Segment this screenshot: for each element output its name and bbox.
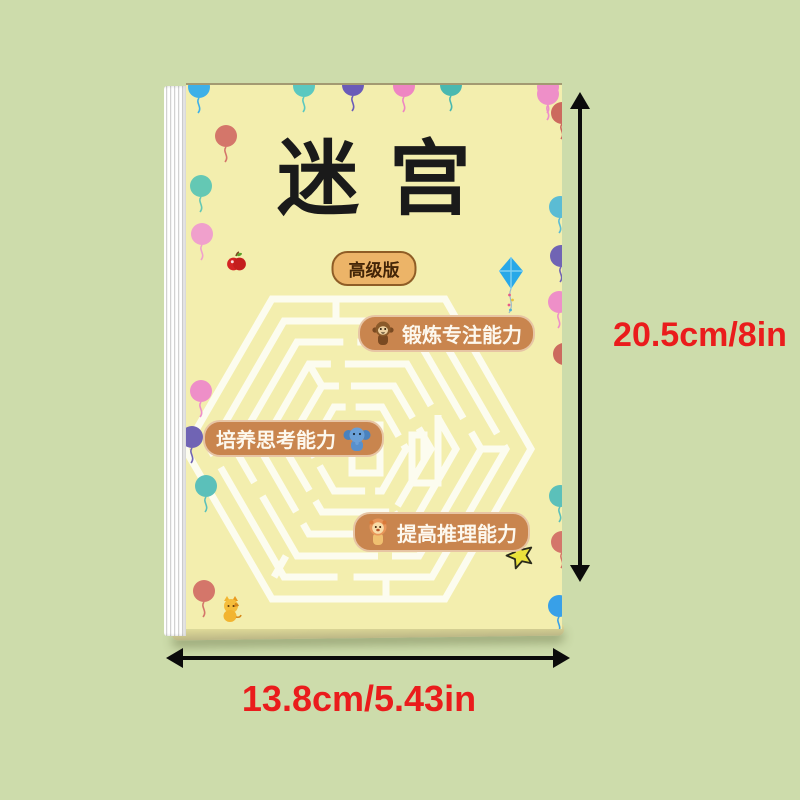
balloon-icon xyxy=(547,595,562,629)
balloon-icon xyxy=(341,83,365,112)
cat-icon xyxy=(218,595,244,623)
apple-icon xyxy=(226,251,247,273)
height-dimension-label: 20.5cm/8in xyxy=(604,316,796,355)
balloon-icon xyxy=(550,102,562,140)
balloon-icon xyxy=(292,83,316,113)
lion-icon xyxy=(366,517,390,547)
width-dimension-label: 13.8cm/5.43in xyxy=(228,678,490,720)
feature-pill-concentration: 锻炼专注能力 xyxy=(358,315,535,352)
balloon-icon xyxy=(550,531,562,569)
balloon-icon xyxy=(547,291,562,329)
arrow-shaft xyxy=(578,105,582,569)
balloon-icon xyxy=(194,475,218,513)
balloon-icon xyxy=(189,380,213,418)
balloon-icon xyxy=(548,485,562,523)
width-dimension-arrow xyxy=(166,644,570,672)
arrow-head-right-icon xyxy=(553,648,570,668)
book-title: 迷宫 xyxy=(186,137,562,223)
feature-label: 培养思考能力 xyxy=(216,424,336,453)
arrow-head-down-icon xyxy=(570,565,590,582)
maze-workbook: 迷宫 高级版 锻炼专注能力 培养思考能力 xyxy=(164,83,562,629)
kite-icon xyxy=(496,255,526,315)
monkey-icon xyxy=(371,320,395,348)
book-page-edges xyxy=(164,86,186,636)
balloon-icon xyxy=(186,426,204,464)
book-cover: 迷宫 高级版 锻炼专注能力 培养思考能力 xyxy=(186,83,562,629)
balloon-icon xyxy=(549,245,562,283)
balloon-icon xyxy=(552,343,562,381)
feature-pill-reasoning: 提高推理能力 xyxy=(353,512,530,552)
arrow-shaft xyxy=(179,656,557,660)
balloon-icon xyxy=(439,83,463,112)
balloon-icon xyxy=(190,223,214,261)
edition-badge: 高级版 xyxy=(332,251,417,286)
height-dimension-arrow xyxy=(566,92,594,582)
balloon-icon xyxy=(187,83,211,114)
feature-pill-thinking: 培养思考能力 xyxy=(203,420,384,457)
balloon-icon xyxy=(392,83,416,113)
feature-label: 提高推理能力 xyxy=(397,518,517,547)
feature-label: 锻炼专注能力 xyxy=(402,319,522,348)
elephant-icon xyxy=(343,425,371,453)
balloon-icon xyxy=(192,580,216,618)
